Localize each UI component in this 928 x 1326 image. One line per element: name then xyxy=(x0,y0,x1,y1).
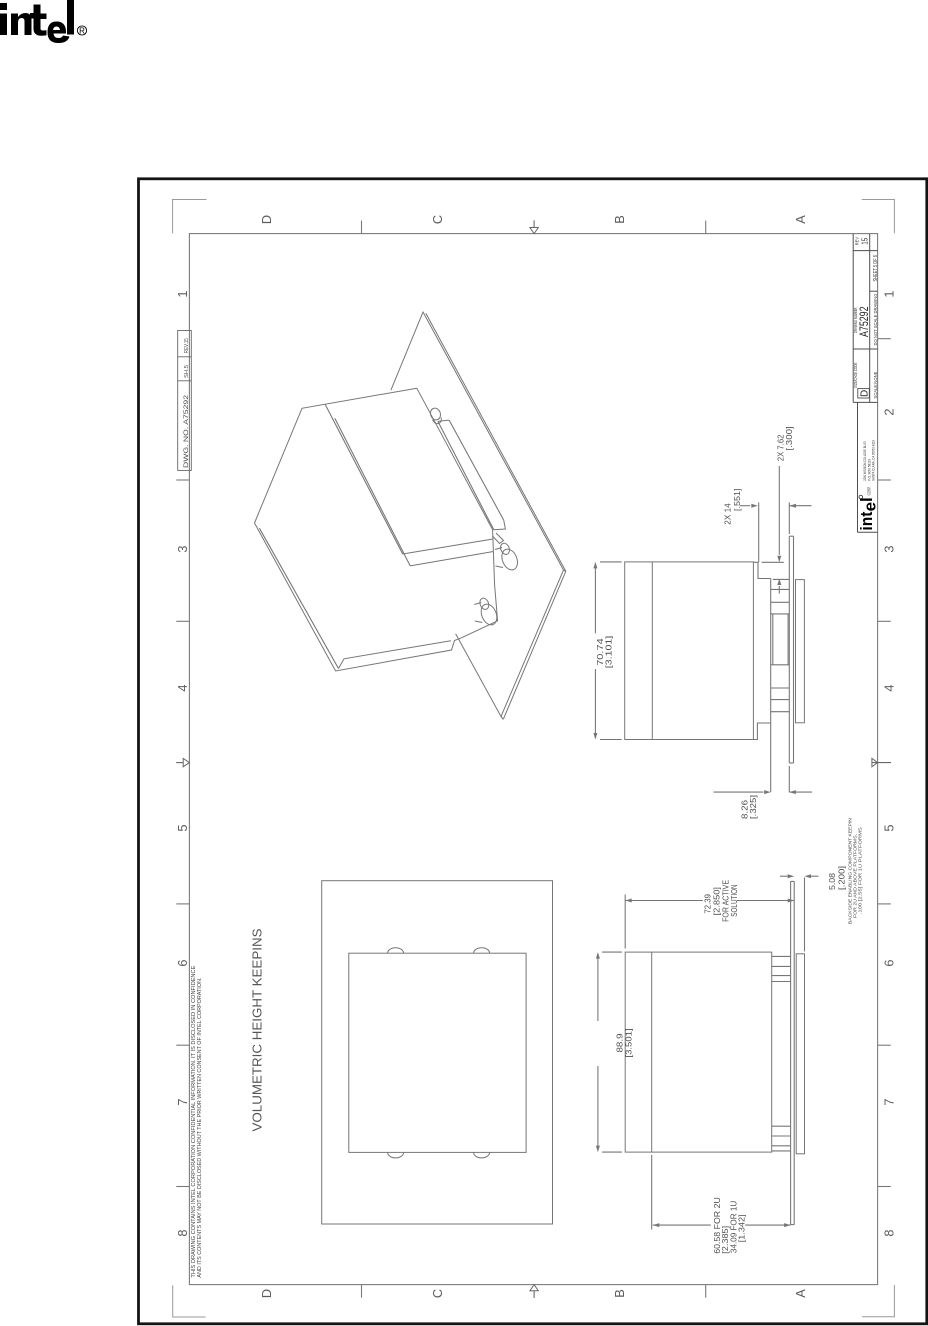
svg-text:A: A xyxy=(793,1289,808,1298)
svg-text:DWG. NO. A75292: DWG. NO. A75292 xyxy=(183,395,190,468)
svg-text:8: 8 xyxy=(881,1229,896,1236)
svg-text:6: 6 xyxy=(881,959,896,966)
svg-text:B: B xyxy=(612,215,627,224)
svg-text:SH.5: SH.5 xyxy=(184,365,190,378)
svg-text:e: e xyxy=(861,502,880,511)
svg-text:D: D xyxy=(259,215,274,224)
svg-text:2200 MISSION COLLEGE BLVD: 2200 MISSION COLLEGE BLVD xyxy=(863,441,867,481)
svg-text:P.O. BOX 58119: P.O. BOX 58119 xyxy=(867,459,871,481)
svg-text:15: 15 xyxy=(860,237,869,244)
svg-text:2: 2 xyxy=(881,408,896,415)
svg-text:4: 4 xyxy=(881,684,896,691)
svg-text:72.39: 72.39 xyxy=(703,894,712,914)
svg-text:[3.501]: [3.501] xyxy=(625,1029,634,1058)
svg-text:5: 5 xyxy=(175,824,190,831)
svg-text:SHEET 5 OF 6: SHEET 5 OF 6 xyxy=(873,255,879,282)
svg-text:VOLUMETRIC HEIGHT KEEPINS: VOLUMETRIC HEIGHT KEEPINS xyxy=(250,929,264,1132)
svg-text:[3.101]: [3.101] xyxy=(604,636,613,668)
svg-text:6: 6 xyxy=(175,959,190,966)
svg-text:3: 3 xyxy=(175,545,190,552)
svg-text:7: 7 xyxy=(881,1098,896,1105)
svg-text:AND ITS CONTENTS MAY NOT BE DI: AND ITS CONTENTS MAY NOT BE DISCLOSED WI… xyxy=(197,977,203,1277)
svg-text:A75292: A75292 xyxy=(859,307,871,338)
svg-text:3: 3 xyxy=(881,545,896,552)
svg-text:SANTA CLARA, CA 95052-8119: SANTA CLARA, CA 95052-8119 xyxy=(872,440,876,481)
svg-text:SCALE:NONE: SCALE:NONE xyxy=(873,372,879,399)
svg-text:DO NOT SCALE DRAWING: DO NOT SCALE DRAWING xyxy=(873,293,879,345)
svg-text:[.325]: [.325] xyxy=(749,795,758,819)
svg-text:2X 14: 2X 14 xyxy=(724,503,733,525)
svg-text:A: A xyxy=(793,215,808,224)
svg-text:[2.850]: [2.850] xyxy=(713,887,722,915)
svg-text:B: B xyxy=(612,1289,627,1298)
svg-text:int: int xyxy=(857,511,876,530)
svg-text:.100 [2.55] FOR 1U PLATFORMS: .100 [2.55] FOR 1U PLATFORMS xyxy=(857,827,863,914)
svg-text:1: 1 xyxy=(881,290,896,297)
svg-text:D: D xyxy=(860,390,871,397)
svg-text:DRAWING NUMBER: DRAWING NUMBER xyxy=(853,307,858,333)
svg-text:CORP.: CORP. xyxy=(867,486,872,495)
svg-text:88.9: 88.9 xyxy=(616,1033,625,1053)
svg-text:C: C xyxy=(430,215,445,224)
svg-text:4: 4 xyxy=(175,684,190,691)
svg-text:R: R xyxy=(79,27,85,36)
svg-text:1: 1 xyxy=(175,290,190,297)
svg-text:5.08: 5.08 xyxy=(828,872,837,890)
svg-text:7: 7 xyxy=(175,1098,190,1105)
svg-text:5: 5 xyxy=(881,824,896,831)
svg-text:C: C xyxy=(430,1289,445,1298)
svg-text:D: D xyxy=(259,1289,274,1298)
svg-text:[1.342]: [1.342] xyxy=(738,1214,747,1242)
svg-text:REV.15: REV.15 xyxy=(184,338,190,353)
svg-text:REV: REV xyxy=(854,236,859,245)
svg-text:SIZE/CAGE CODE: SIZE/CAGE CODE xyxy=(853,363,858,389)
svg-text:[.200]: [.200] xyxy=(838,866,847,890)
svg-text:8: 8 xyxy=(175,1229,190,1236)
svg-text:[.551]: [.551] xyxy=(733,489,742,512)
svg-text:SOLUTION: SOLUTION xyxy=(730,884,739,916)
svg-text:[.300]: [.300] xyxy=(785,426,794,450)
